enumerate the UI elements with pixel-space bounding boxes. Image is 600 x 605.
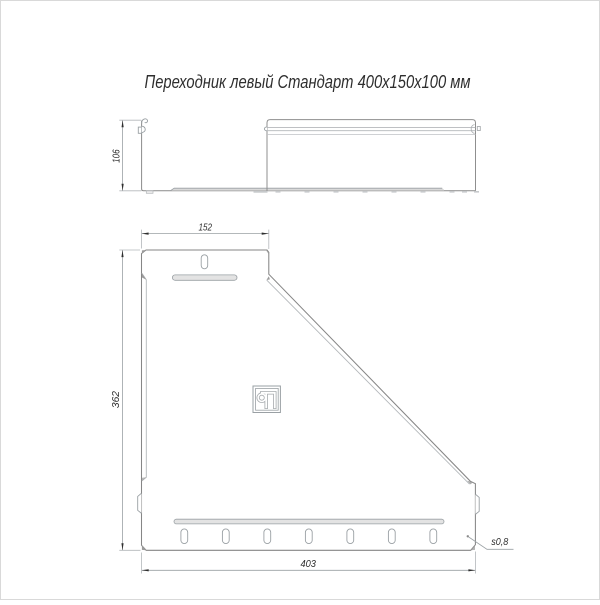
svg-text:152: 152 [199,221,213,233]
svg-text:106: 106 [111,149,123,163]
svg-text:Переходник левый Стандарт 400х: Переходник левый Стандарт 400х150х100 мм [145,71,471,92]
svg-text:403: 403 [300,558,316,570]
svg-text:362: 362 [110,391,122,408]
svg-text:s0,8: s0,8 [491,536,508,548]
